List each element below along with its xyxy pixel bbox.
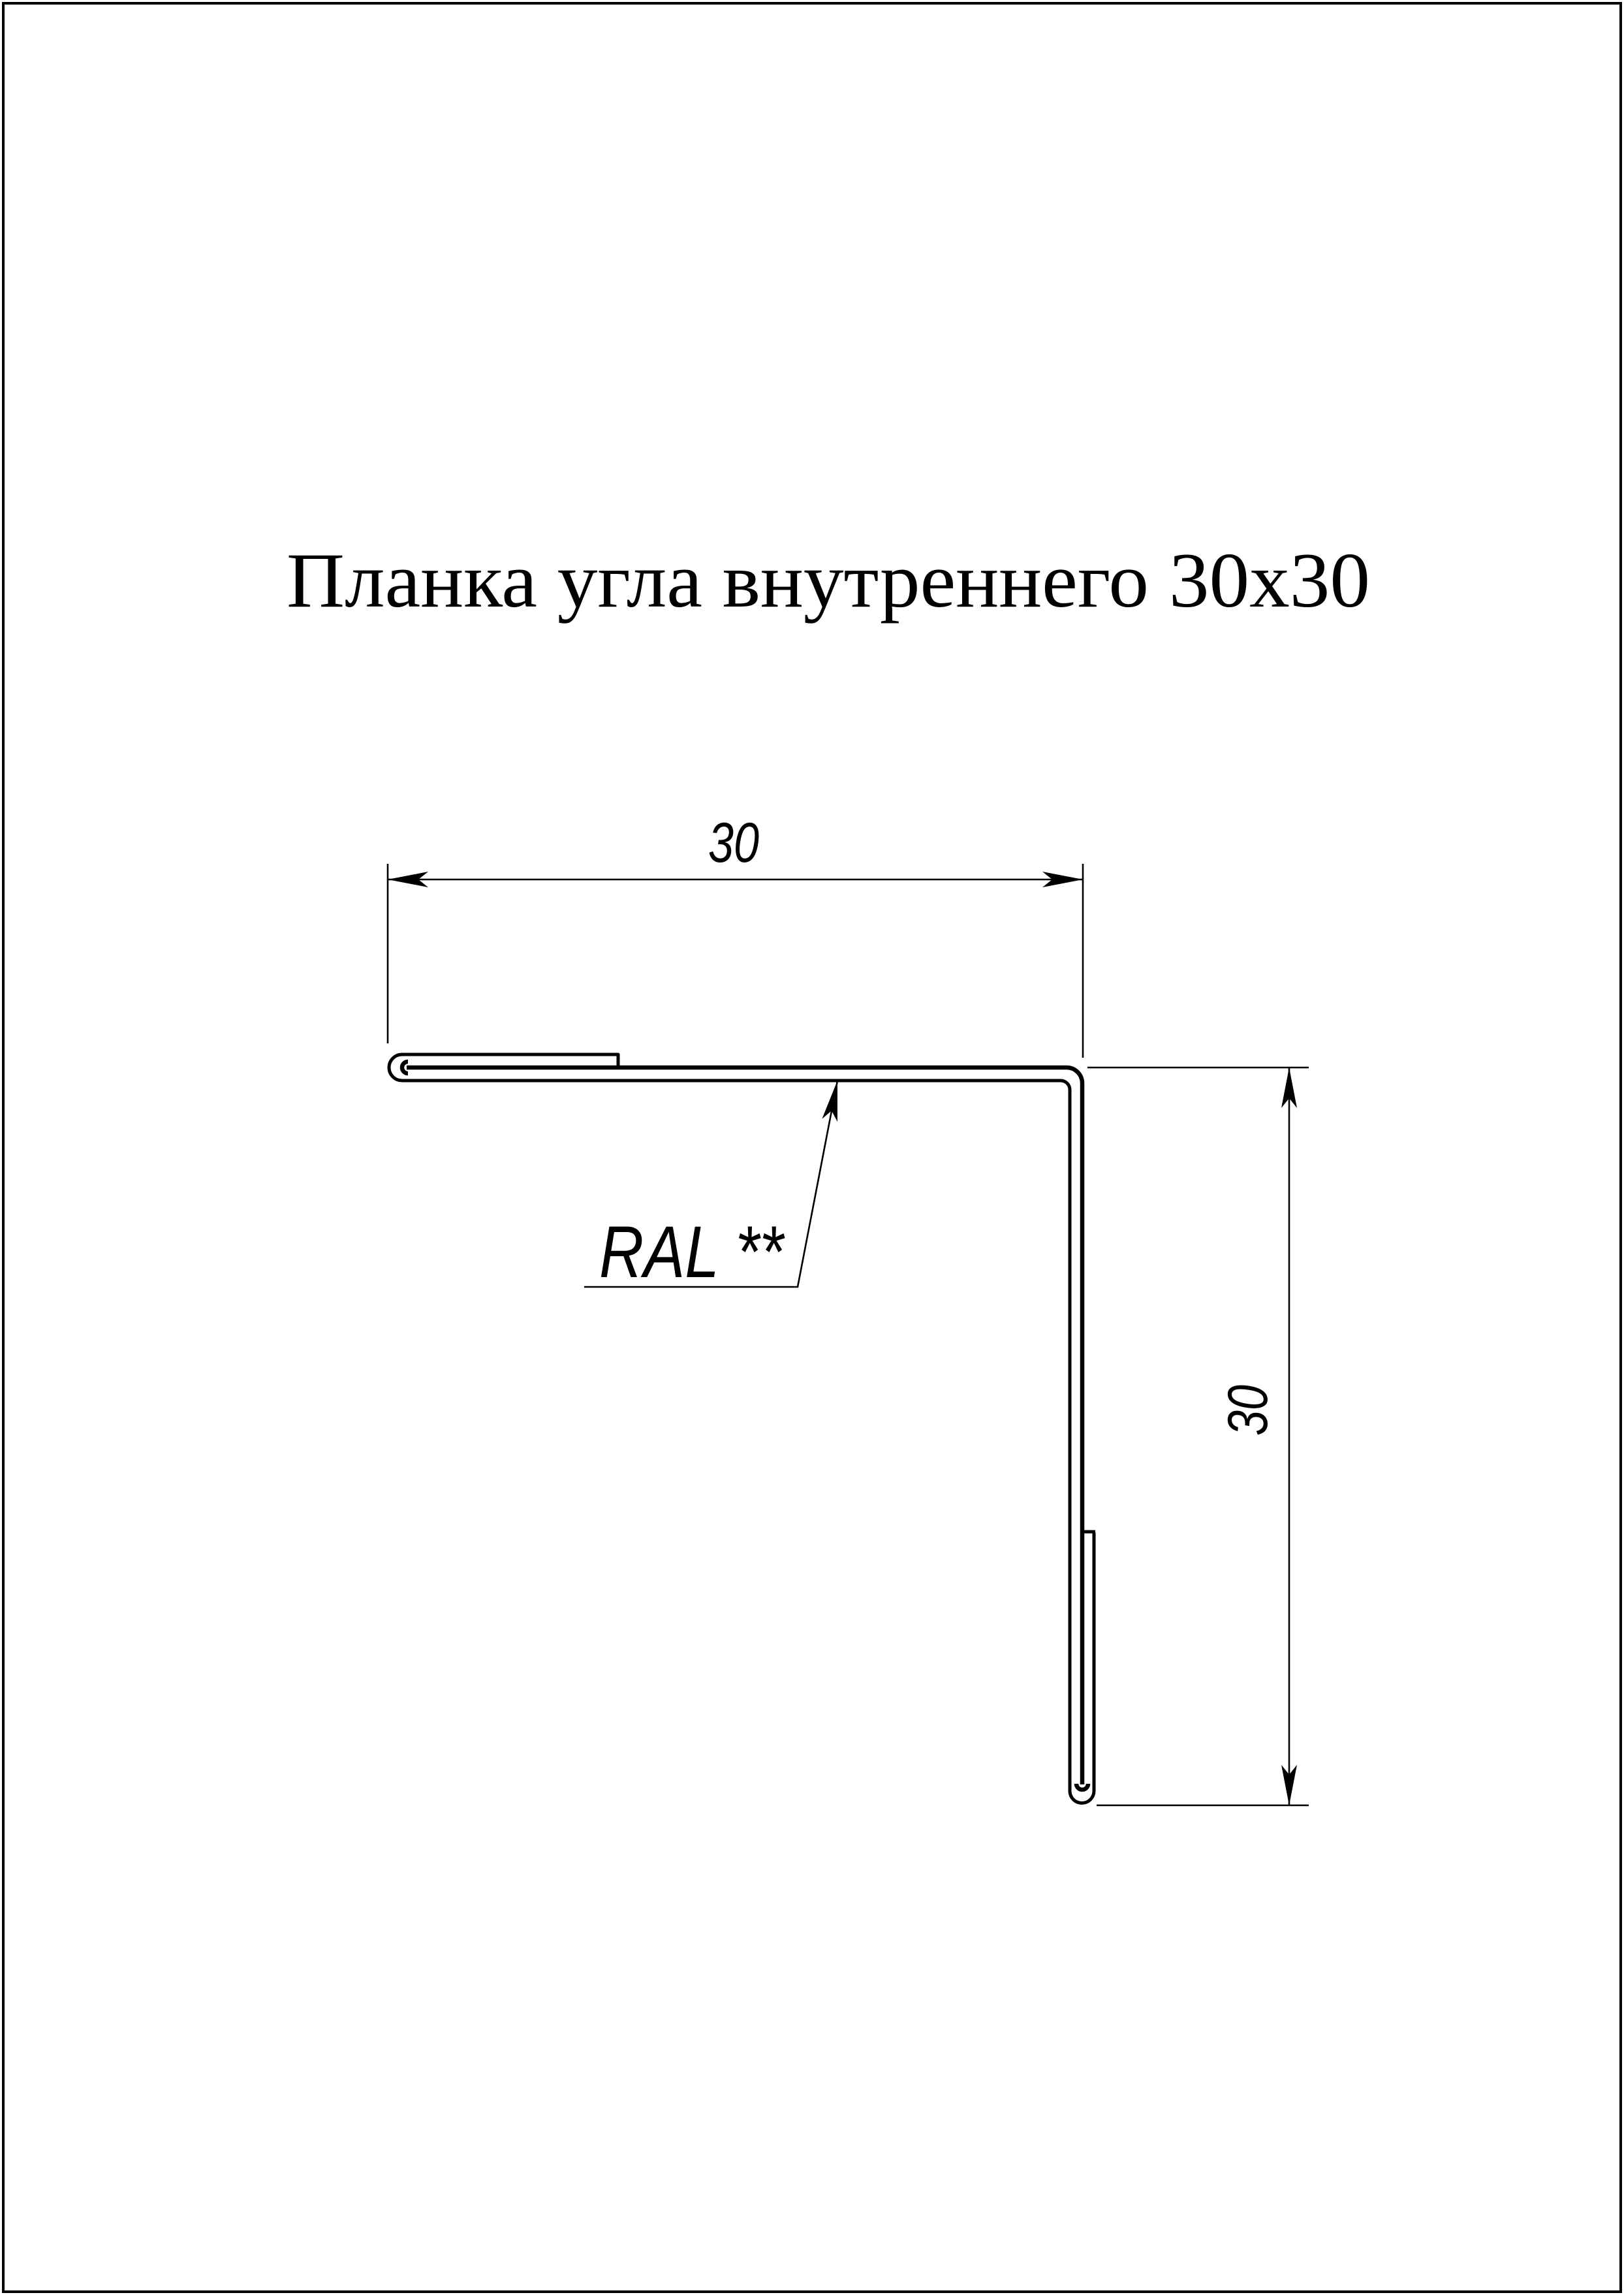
profile-fold-line <box>402 1062 1088 1790</box>
dimension-value-horizontal: 30 <box>708 812 759 874</box>
drawing-title: Планка угла внутреннего 30x30 <box>287 537 1370 624</box>
profile-outline <box>389 1054 1094 1803</box>
dimension-value-vertical: 30 <box>1217 1385 1279 1436</box>
vertical-dimension: 30 <box>1087 1068 1309 1805</box>
sheet-border <box>3 3 1621 2292</box>
leader-arrow <box>822 1079 845 1122</box>
ral-label: RAL ** <box>599 1211 785 1293</box>
horizontal-dimension: 30 <box>388 812 1083 1058</box>
corner-profile <box>389 1054 1095 1803</box>
drawing-sheet: Планка угла внутреннего 30x30 30 <box>0 0 1624 2295</box>
ral-color-note: RAL ** <box>584 1079 845 1293</box>
